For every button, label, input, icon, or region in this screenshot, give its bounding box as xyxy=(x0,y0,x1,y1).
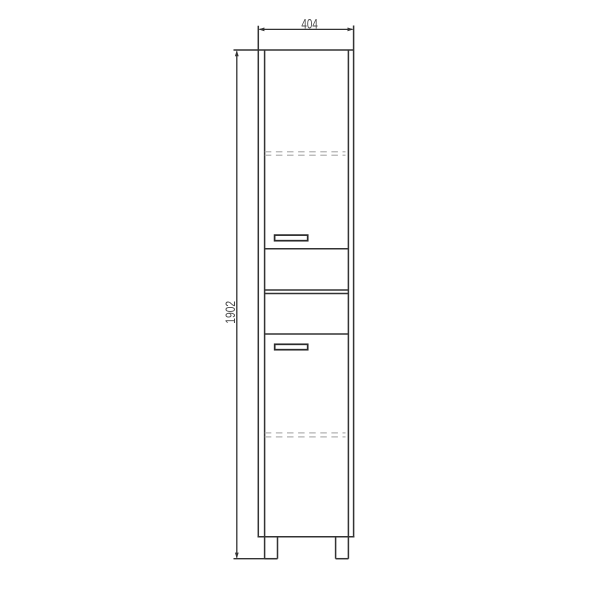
svg-text:404: 404 xyxy=(301,17,318,32)
svg-text:1902: 1902 xyxy=(223,301,238,324)
